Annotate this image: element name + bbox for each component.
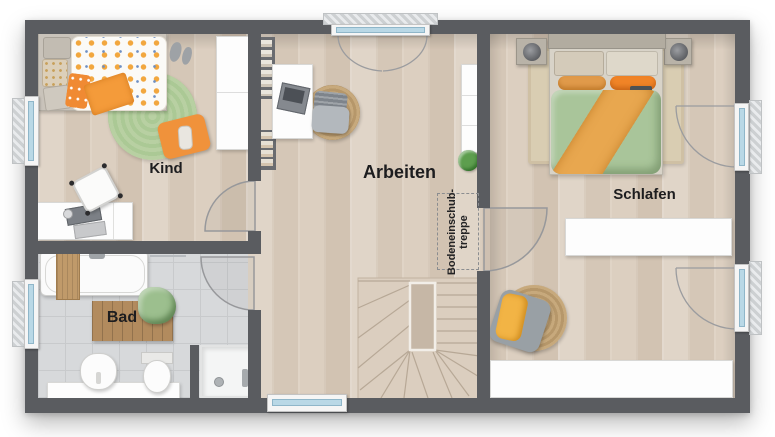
label-arbeiten: Arbeiten [337, 162, 462, 183]
stair-void [410, 283, 435, 350]
wall-kind-bad [38, 241, 261, 254]
kind-door-arc [205, 181, 255, 231]
top-window-glass [336, 27, 425, 33]
wall-bad-hall [248, 310, 261, 398]
label-kind: Kind [134, 160, 198, 177]
wall-kind-arbeiten [248, 34, 261, 181]
label-bad: Bad [97, 309, 147, 327]
left-window-kind-glass [28, 101, 34, 161]
wall-arbeiten-schlafen-bottom [477, 271, 490, 398]
wall-shower-stub [190, 345, 199, 398]
bottom-window-glass [272, 399, 342, 406]
attic-hatch-label: Bodeneinschub- treppe [446, 188, 470, 274]
staircase [358, 278, 487, 399]
label-schlafen: Schlafen [602, 186, 687, 203]
top-window-casement-right [383, 36, 427, 71]
wall-bottom [25, 398, 750, 413]
right-window2-shutter [749, 261, 762, 335]
wall-left [25, 20, 38, 413]
right-window1-casement [676, 106, 737, 167]
right-window2-glass [739, 269, 745, 327]
bad-door-arc [201, 257, 254, 310]
left-window-bad-glass [28, 284, 34, 344]
right-window1-shutter [749, 100, 762, 174]
schlafen-door-arc [484, 208, 547, 271]
right-window1-glass [739, 108, 745, 166]
top-window-casement-left [338, 36, 382, 71]
right-window2-casement [676, 268, 737, 329]
wall-right [735, 20, 750, 413]
attic-hatch-label-box: Bodeneinschub- treppe [437, 193, 479, 270]
floor-plan: Kind Arbeiten Schlafen Bad Bodeneinschub… [0, 0, 775, 437]
stairs-and-doors-layer [0, 0, 775, 437]
wall-arbeiten-schlafen-top [477, 34, 490, 208]
